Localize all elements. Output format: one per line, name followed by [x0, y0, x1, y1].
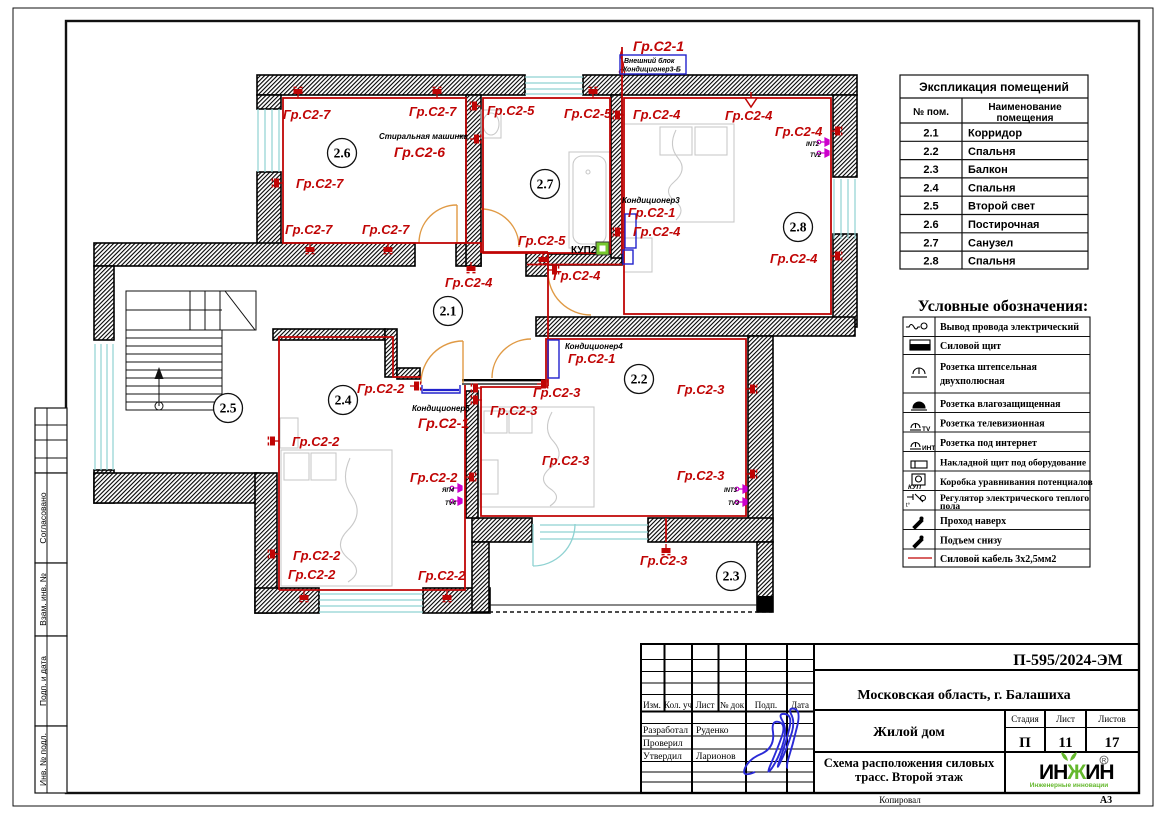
- svg-text:Второй свет: Второй свет: [968, 201, 1036, 213]
- svg-text:Гр.С2-3: Гр.С2-3: [542, 453, 590, 468]
- svg-text:Силовой щит: Силовой щит: [940, 341, 1001, 352]
- svg-text:Условные обозначения:: Условные обозначения:: [918, 298, 1089, 315]
- svg-text:КУП: КУП: [908, 484, 921, 491]
- svg-text:Гр.С2-1: Гр.С2-1: [633, 38, 684, 54]
- svg-text:Коробка уравнивания потенциало: Коробка уравнивания потенциалов: [940, 477, 1093, 488]
- svg-text:Санузел: Санузел: [968, 237, 1013, 249]
- svg-text:Гр.С2-5: Гр.С2-5: [564, 106, 612, 121]
- svg-text:Гр.С2-6: Гр.С2-6: [394, 144, 445, 160]
- svg-text:Кондиционер3-Б: Кондиционер3-Б: [623, 66, 681, 74]
- svg-text:Гр.С2-5: Гр.С2-5: [487, 103, 535, 118]
- svg-text:трасс. Второй этаж: трасс. Второй этаж: [855, 770, 964, 784]
- svg-text:2.6: 2.6: [334, 146, 351, 161]
- svg-text:Взам. инв. №: Взам. инв. №: [38, 573, 48, 626]
- svg-text:17: 17: [1105, 735, 1121, 751]
- svg-text:INT2: INT2: [806, 142, 820, 148]
- svg-text:Постирочная: Постирочная: [968, 219, 1039, 231]
- svg-text:Гр.С2-2: Гр.С2-2: [418, 568, 466, 583]
- svg-text:Кондиционер4: Кондиционер4: [565, 342, 623, 351]
- svg-text:Регулятор электрического тепло: Регулятор электрического теплого: [940, 494, 1089, 504]
- svg-text:Кондиционер3: Кондиционер3: [622, 196, 680, 205]
- svg-text:Подъем снизу: Подъем снизу: [940, 536, 1002, 547]
- svg-text:Накладной щит под оборудование: Накладной щит под оборудование: [940, 458, 1086, 469]
- svg-text:2.8: 2.8: [923, 256, 938, 268]
- svg-text:№ пом.: № пом.: [913, 107, 949, 118]
- svg-text:Гр.С2-5: Гр.С2-5: [518, 233, 566, 248]
- svg-text:Гр.С2-1: Гр.С2-1: [418, 415, 469, 431]
- svg-text:№ док: № док: [720, 700, 745, 710]
- svg-text:2.1: 2.1: [440, 304, 457, 319]
- svg-text:Гр.С2-7: Гр.С2-7: [283, 107, 331, 122]
- svg-text:Внешний блок: Внешний блок: [624, 57, 675, 65]
- svg-text:Гр.С2-7: Гр.С2-7: [285, 222, 333, 237]
- svg-text:Изм.: Изм.: [643, 700, 661, 710]
- svg-text:Гр.С2-4: Гр.С2-4: [633, 107, 681, 122]
- svg-text:Московская область, г. Балаших: Московская область, г. Балашиха: [857, 688, 1070, 703]
- svg-text:Гр.С2-4: Гр.С2-4: [553, 268, 601, 283]
- svg-text:Инженерные инновации: Инженерные инновации: [1030, 782, 1108, 789]
- svg-text:Экспликация помещений: Экспликация помещений: [919, 80, 1069, 94]
- svg-text:двухполюсная: двухполюсная: [940, 376, 1005, 387]
- svg-text:Разработал: Разработал: [643, 725, 688, 736]
- svg-text:11: 11: [1058, 735, 1072, 751]
- svg-text:TV3: TV3: [728, 501, 740, 507]
- svg-text:Кол. уч: Кол. уч: [664, 700, 692, 710]
- svg-text:Гр.С2-7: Гр.С2-7: [296, 176, 344, 191]
- svg-text:Балкон: Балкон: [968, 164, 1008, 176]
- svg-text:Гр.С2-2: Гр.С2-2: [288, 567, 336, 582]
- svg-text:Спальня: Спальня: [968, 256, 1016, 268]
- svg-text:2.5: 2.5: [923, 201, 938, 213]
- svg-text:Инв. № подл.: Инв. № подл.: [38, 733, 48, 786]
- svg-text:2.7: 2.7: [923, 237, 938, 249]
- svg-text:Гр.С2-3: Гр.С2-3: [677, 382, 725, 397]
- svg-text:2.3: 2.3: [723, 569, 740, 584]
- svg-text:Листов: Листов: [1098, 714, 1125, 724]
- svg-text:Силовой кабель 3х2,5мм2: Силовой кабель 3х2,5мм2: [940, 554, 1056, 565]
- svg-text:R: R: [1102, 759, 1107, 765]
- svg-text:2.2: 2.2: [923, 146, 938, 158]
- svg-text:Проверил: Проверил: [643, 739, 683, 749]
- svg-text:Гр.С2-4: Гр.С2-4: [775, 124, 823, 139]
- svg-text:2.7: 2.7: [537, 177, 554, 192]
- svg-text:ЯП4: ЯП4: [441, 488, 455, 494]
- svg-text:Утвердил: Утвердил: [643, 752, 682, 762]
- svg-text:TV2: TV2: [810, 153, 822, 159]
- svg-text:Стиральная машинка: Стиральная машинка: [379, 132, 469, 141]
- svg-text:2.2: 2.2: [631, 372, 648, 387]
- svg-text:Подп.: Подп.: [755, 700, 777, 710]
- svg-text:Корридор: Корридор: [968, 128, 1022, 140]
- svg-text:2.4: 2.4: [923, 182, 939, 194]
- svg-text:Гр.С2-2: Гр.С2-2: [293, 548, 341, 563]
- svg-text:Розетка телевизионная: Розетка телевизионная: [940, 419, 1045, 430]
- svg-text:Гр.С2-3: Гр.С2-3: [640, 553, 688, 568]
- svg-text:Стадия: Стадия: [1011, 714, 1038, 724]
- svg-text:Проход наверх: Проход наверх: [940, 516, 1006, 527]
- svg-text:2.8: 2.8: [790, 220, 807, 235]
- svg-text:Подп. и дата: Подп. и дата: [38, 656, 48, 706]
- svg-text:t°: t°: [906, 503, 911, 509]
- svg-text:Спальня: Спальня: [968, 146, 1016, 158]
- svg-text:Гр.С2-7: Гр.С2-7: [362, 222, 410, 237]
- svg-text:Лист: Лист: [1056, 714, 1075, 724]
- svg-text:Гр.С2-3: Гр.С2-3: [490, 403, 538, 418]
- svg-text:TV: TV: [922, 426, 931, 433]
- svg-text:Гр.С2-4: Гр.С2-4: [770, 251, 818, 266]
- svg-text:Гр.С2-4: Гр.С2-4: [445, 275, 493, 290]
- svg-text:Гр.С2-4: Гр.С2-4: [725, 108, 773, 123]
- svg-text:А3: А3: [1100, 795, 1112, 806]
- svg-text:Гр.С2-2: Гр.С2-2: [292, 434, 340, 449]
- svg-text:Вывод провода электрический: Вывод провода электрический: [940, 322, 1079, 333]
- svg-text:Гр.С2-4: Гр.С2-4: [633, 224, 681, 239]
- svg-text:Гр.С2-2: Гр.С2-2: [410, 470, 458, 485]
- svg-text:КУП2: КУП2: [571, 245, 597, 256]
- svg-text:Лист: Лист: [696, 700, 715, 710]
- svg-text:Ларионов: Ларионов: [696, 752, 736, 762]
- svg-text:Схема расположения силовых: Схема расположения силовых: [824, 756, 995, 770]
- svg-text:2.5: 2.5: [220, 401, 237, 416]
- svg-text:ИНТ: ИНТ: [922, 445, 935, 452]
- svg-text:Согласовано: Согласовано: [38, 492, 48, 543]
- svg-text:2.6: 2.6: [923, 219, 938, 231]
- svg-text:Копировал: Копировал: [879, 795, 921, 805]
- svg-text:Гр.С2-1: Гр.С2-1: [568, 351, 615, 366]
- svg-text:Гр.С2-1: Гр.С2-1: [628, 205, 675, 220]
- svg-text:Гр.С2-3: Гр.С2-3: [533, 385, 581, 400]
- svg-text:П: П: [1019, 735, 1031, 751]
- svg-text:Кондиционер5: Кондиционер5: [412, 404, 470, 413]
- svg-text:Гр.С2-7: Гр.С2-7: [409, 104, 457, 119]
- svg-text:помещения: помещения: [997, 113, 1054, 124]
- svg-text:INT3: INT3: [724, 488, 738, 494]
- svg-text:Гр.С2-3: Гр.С2-3: [677, 468, 725, 483]
- svg-text:Розетка под интернет: Розетка под интернет: [940, 438, 1037, 449]
- svg-text:Розетка штепсельная: Розетка штепсельная: [940, 362, 1038, 373]
- svg-text:Наименование: Наименование: [988, 102, 1062, 113]
- svg-text:Гр.С2-2: Гр.С2-2: [357, 381, 405, 396]
- svg-text:Спальня: Спальня: [968, 182, 1016, 194]
- svg-text:Розетка влагозащищенная: Розетка влагозащищенная: [940, 399, 1061, 410]
- svg-text:2.3: 2.3: [923, 164, 938, 176]
- svg-text:Жилой дом: Жилой дом: [873, 725, 945, 740]
- svg-text:пола: пола: [940, 502, 960, 512]
- svg-text:П-595/2024-ЭМ: П-595/2024-ЭМ: [1013, 652, 1123, 669]
- svg-text:2.4: 2.4: [335, 393, 352, 408]
- svg-text:TV4: TV4: [445, 501, 457, 507]
- svg-text:2.1: 2.1: [923, 128, 938, 140]
- svg-text:Руденко: Руденко: [696, 726, 729, 736]
